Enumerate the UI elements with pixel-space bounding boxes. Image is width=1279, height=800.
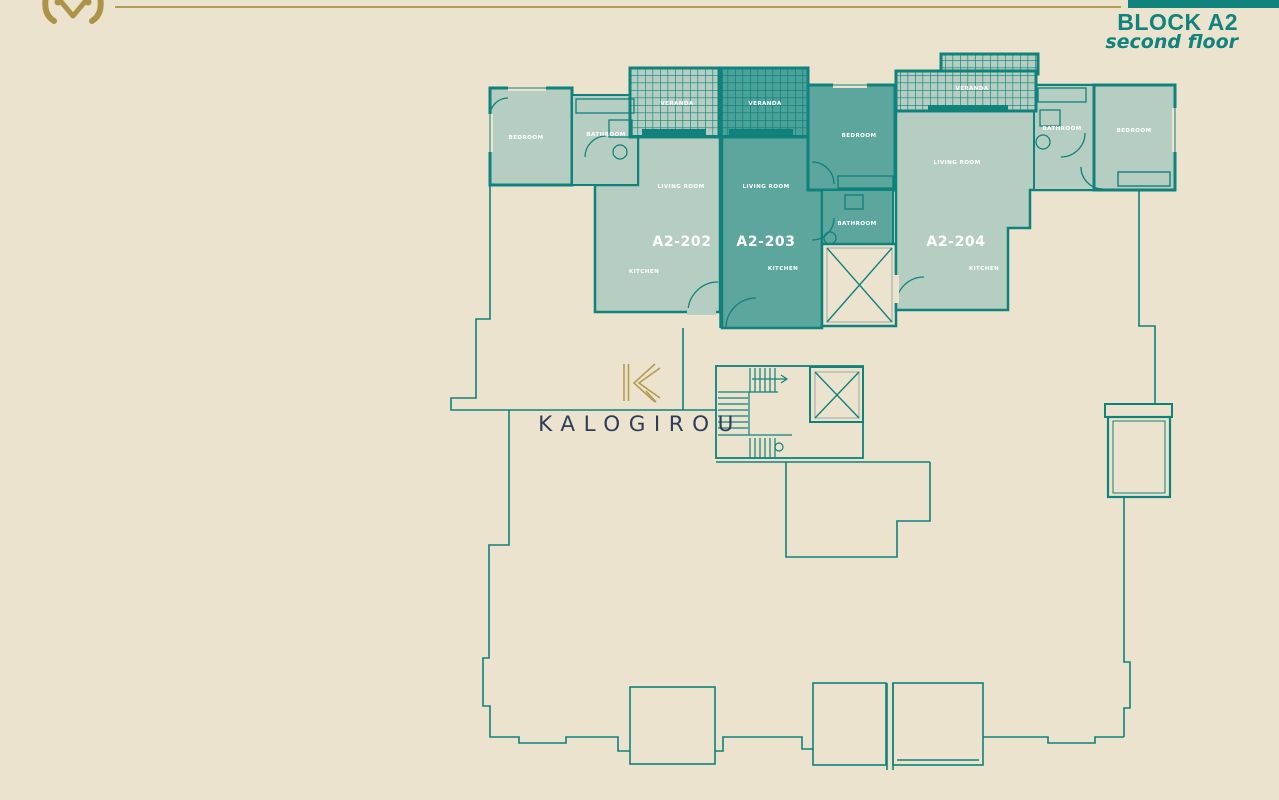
- balcony-box-left: [630, 687, 715, 764]
- room-label-bathroom: BATHROOM: [586, 132, 625, 138]
- room-label-kitchen: KITCHEN: [768, 266, 798, 272]
- a2-202-veranda-sill: [642, 129, 706, 135]
- kalogirou-monogram-icon: [624, 364, 660, 402]
- room-label-bedroom: BEDROOM: [842, 133, 877, 139]
- room-label-living: LIVING ROOM: [933, 160, 980, 166]
- a2-204-bedroom: [1094, 85, 1175, 190]
- kalogirou-logo: KALOGIROU: [538, 364, 742, 437]
- a2-204-windows: [1172, 108, 1178, 152]
- outline-below-core: [716, 462, 930, 557]
- floor-plan: BEDROOM BATHROOM VERANDA LIVING ROOM A2-…: [0, 0, 1279, 800]
- balcony-boxes: [630, 683, 983, 770]
- a2-203-bathroom: [822, 190, 893, 250]
- room-label-living: LIVING ROOM: [742, 184, 789, 190]
- elevator-shaft-core: [810, 367, 863, 422]
- room-label-bathroom: BATHROOM: [837, 221, 876, 227]
- elevator-shaft-upper: [822, 244, 896, 326]
- room-label-bedroom: BEDROOM: [1117, 128, 1152, 134]
- room-label-living: LIVING ROOM: [657, 184, 704, 190]
- room-label-kitchen: KITCHEN: [969, 266, 999, 272]
- room-label-veranda: VERANDA: [748, 101, 782, 107]
- a2-204-door-gap: [893, 275, 899, 303]
- room-label-bedroom: BEDROOM: [509, 135, 544, 141]
- kalogirou-wordmark: KALOGIROU: [538, 412, 742, 437]
- unit-label: A2-204: [926, 234, 985, 250]
- a2-204-bathroom: [1034, 85, 1096, 190]
- room-label-veranda: VERANDA: [660, 101, 694, 107]
- room-label-kitchen: KITCHEN: [629, 269, 659, 275]
- right-balcony: [1105, 404, 1172, 497]
- a2-203-veranda-sill: [729, 129, 793, 135]
- apartment-a2-204[interactable]: VERANDA LIVING ROOM A2-204 KITCHEN BATHR…: [893, 54, 1178, 310]
- outline-bottom-right: [983, 737, 1124, 743]
- room-label-veranda: VERANDA: [955, 86, 989, 92]
- apartment-a2-202[interactable]: BEDROOM BATHROOM VERANDA LIVING ROOM A2-…: [487, 68, 720, 315]
- balcony-divider: [887, 683, 893, 770]
- unit-label: A2-202: [652, 234, 711, 250]
- elevator-x-icon: [815, 372, 859, 418]
- outline-right-lower: [1124, 497, 1130, 737]
- outline-left-lower: [483, 410, 630, 751]
- room-label-bathroom: BATHROOM: [1042, 126, 1081, 132]
- a2-204-veranda-sill: [928, 105, 1008, 111]
- unit-label: A2-203: [736, 234, 795, 250]
- a2-202-door-gap: [687, 308, 716, 315]
- outline-right-upper: [1139, 190, 1155, 404]
- outline-bottom-mid: [715, 737, 813, 751]
- a2-202-bathroom: [572, 95, 638, 185]
- balcony-box-mid: [813, 683, 886, 765]
- balcony-box-right: [893, 683, 983, 765]
